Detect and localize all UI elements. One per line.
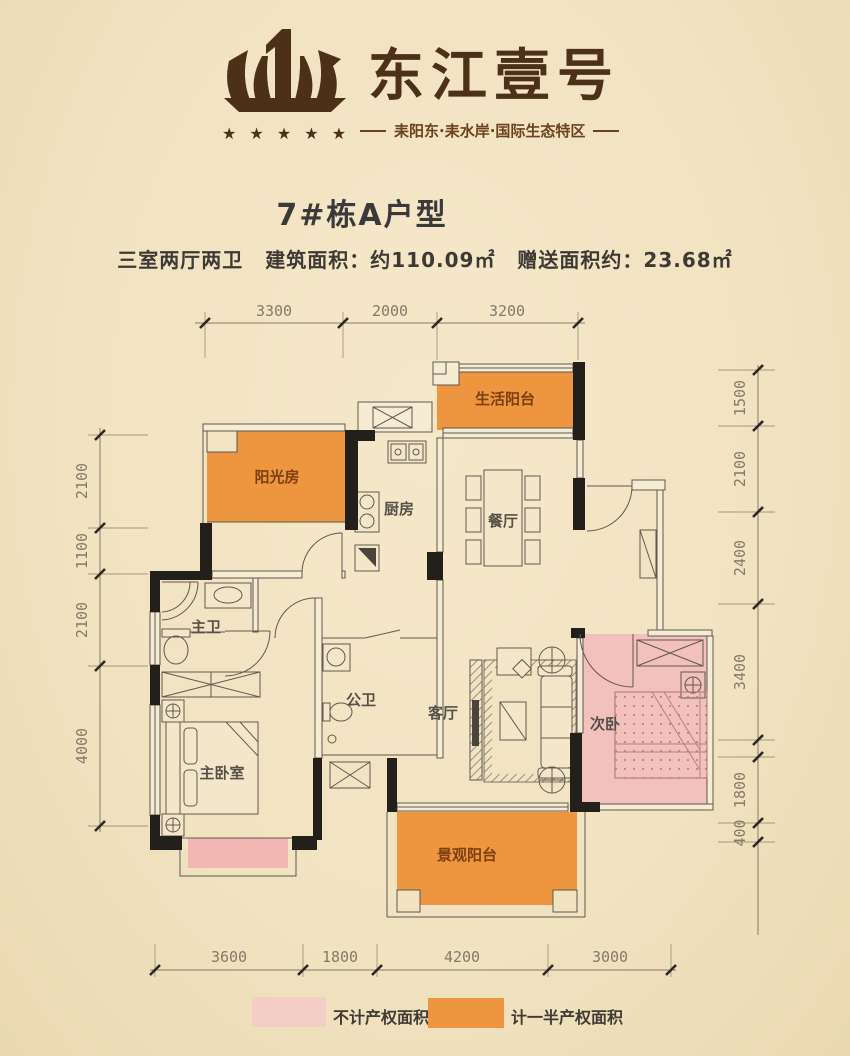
dim-right-1: 1500	[731, 380, 749, 416]
dim-top-1: 3300	[256, 302, 292, 320]
entry-door	[587, 486, 632, 531]
label-master-bath: 主卫	[191, 618, 221, 636]
guest-bath-fixtures	[323, 644, 370, 788]
flyer-page: ★ ★ ★ ★ ★ 东江壹号 耒阳东·耒水岸·国际生态特区 7#栋A户型 三室两…	[0, 0, 850, 1056]
label-master-bedroom: 主卧室	[199, 764, 244, 782]
dim-left-1: 2100	[73, 463, 91, 499]
dim-left-3: 2100	[73, 602, 91, 638]
dim-right-4: 3400	[731, 654, 749, 690]
label-living: 客厅	[427, 704, 458, 722]
legend-orange-swatch	[428, 998, 504, 1028]
legend-pink-label: 不计产权面积	[333, 1004, 429, 1028]
room-fill-layer	[188, 372, 710, 905]
dim-bottom-2: 1800	[322, 948, 358, 966]
legend-pink-swatch	[252, 997, 326, 1027]
label-sunroom: 阳光房	[254, 468, 299, 486]
dim-bottom-1: 3600	[211, 948, 247, 966]
label-service-balcony: 生活阳台	[475, 390, 535, 408]
dim-right-3: 2400	[731, 540, 749, 576]
legend-orange-label: 计一半产权面积	[511, 1004, 623, 1028]
dim-top-3: 3200	[489, 302, 525, 320]
label-dining: 餐厅	[488, 512, 518, 530]
master-bedroom-furniture	[162, 672, 260, 836]
bay-window-fill	[188, 838, 288, 868]
dim-bottom-3: 4200	[444, 948, 480, 966]
dim-left-4: 4000	[73, 728, 91, 764]
dim-left-2: 1100	[73, 533, 91, 569]
label-view-balcony: 景观阳台	[437, 846, 497, 864]
dim-right-6: 400	[731, 819, 749, 846]
corridor-door	[275, 598, 315, 638]
label-second-bedroom: 次卧	[590, 715, 620, 733]
dim-top-2: 2000	[372, 302, 408, 320]
dim-right-5: 1800	[731, 772, 749, 808]
dim-bottom-4: 3000	[592, 948, 628, 966]
master-bath-door	[225, 631, 270, 676]
dim-right-2: 2100	[731, 451, 749, 487]
living-room-furniture	[470, 647, 576, 793]
floorplan: 3300 2000 3200 2100 1100 2100 4000	[0, 0, 850, 1056]
hall-door	[302, 533, 342, 573]
label-guest-bath: 公卫	[346, 691, 376, 709]
label-kitchen: 厨房	[384, 500, 414, 518]
